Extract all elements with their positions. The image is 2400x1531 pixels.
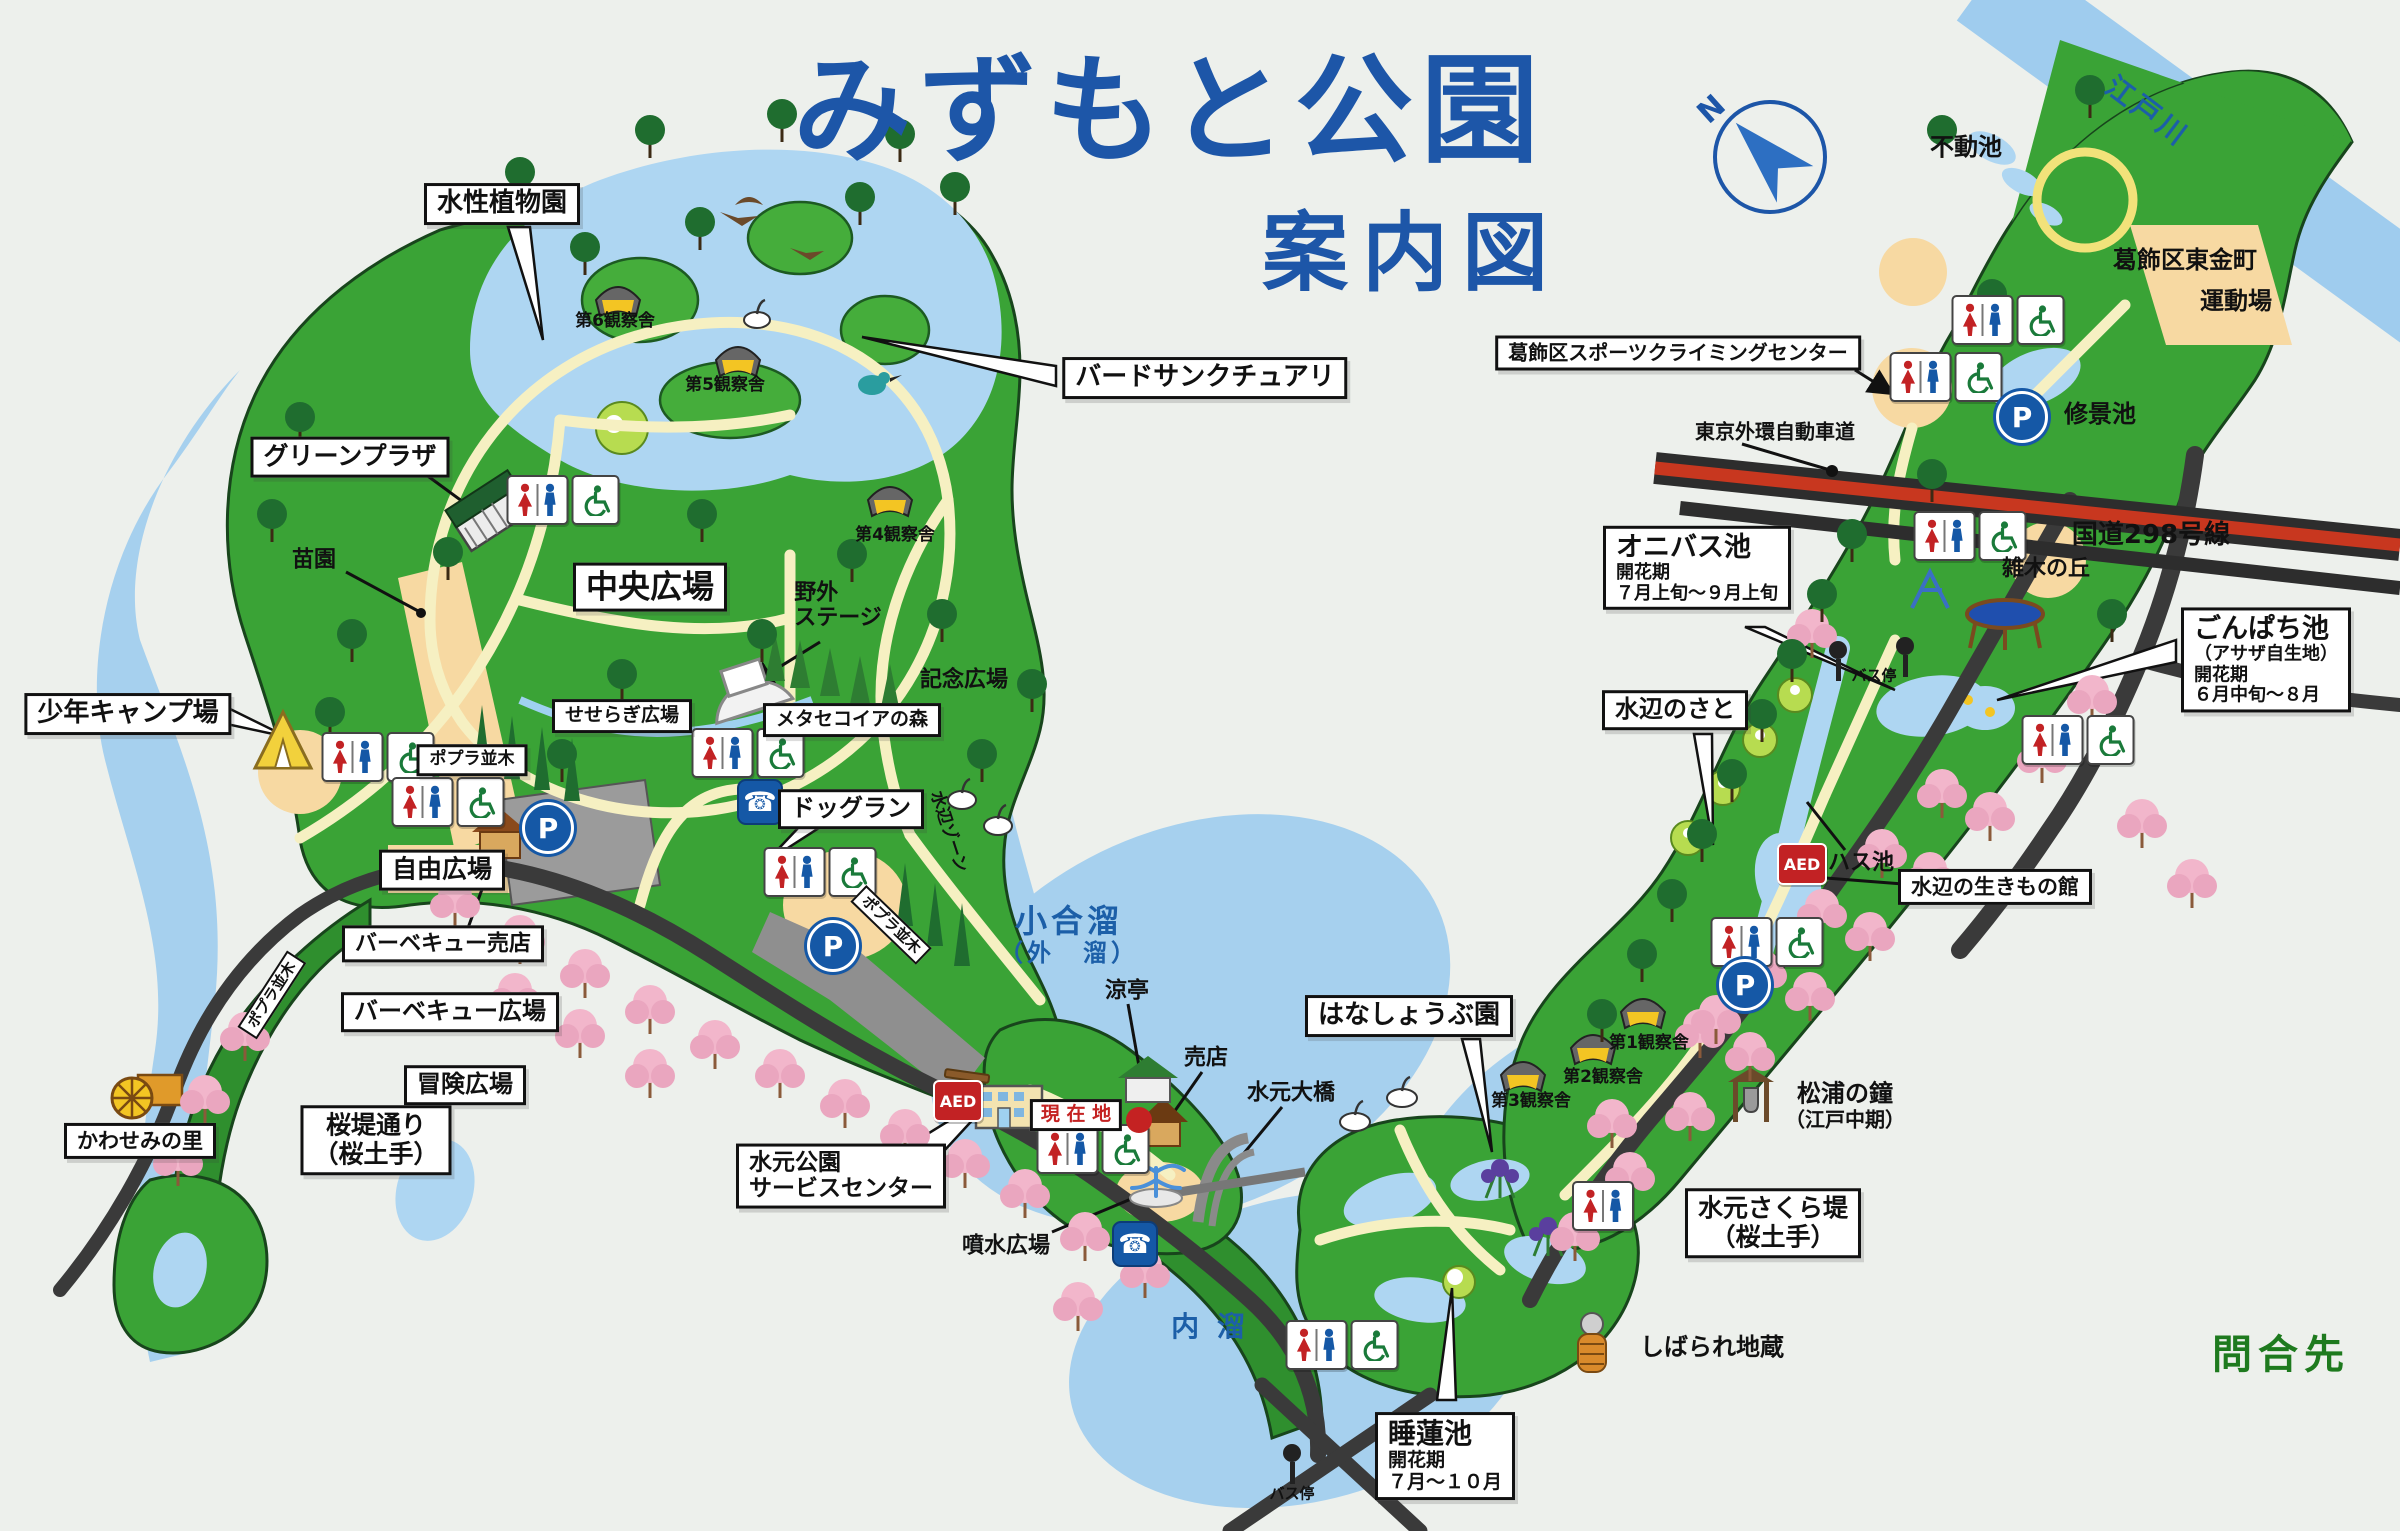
cherry-tree [2117, 799, 2167, 848]
current-location-label: 現 在 地 [1030, 1099, 1122, 1131]
iris-garden-label: はなしょうぶ園 [1305, 995, 1513, 1037]
restroom-icon [1890, 352, 2003, 402]
map-subtitle: 案内図 [1262, 183, 1562, 308]
nursery-garden-label: 苗園 [292, 547, 336, 572]
cherry-tree [755, 1049, 805, 1098]
bird-sanctuary-label: バードサンクチュアリ [1062, 357, 1347, 399]
ryotei-pavilion-label: 涼亭 [1105, 978, 1149, 1003]
aed-icon: AED [933, 1080, 983, 1122]
water-lily-flower [1447, 1269, 1463, 1285]
kawasemi-village-label: かわせみの里 [64, 1123, 216, 1159]
kiosk-label: 売店 [1184, 1045, 1228, 1070]
koaidame-lake-label: 小合溜（外 溜） [999, 903, 1139, 967]
fudo-pond-label: 不動池 [1930, 134, 2002, 162]
mizube-no-sato-label: 水辺のさと [1602, 690, 1748, 730]
aquatic-plant-garden-label: 水性植物園 [424, 183, 580, 225]
poplar-row-sign-1-label: ポプラ並木 [417, 744, 528, 776]
mizumoto-sakura-bank-label: 水元さくら堤（桜土手） [1685, 1188, 1861, 1258]
aed-icon: AED [1777, 843, 1827, 885]
zoki-hill-label: 雑木の丘 [2002, 556, 2090, 581]
cherry-tree [820, 1079, 870, 1128]
cherry-tree [625, 1049, 675, 1098]
fountain-plaza-label: 噴水広場 [962, 1233, 1050, 1258]
metasequoia-forest-label: メタセコイアの森 [763, 703, 941, 737]
higashikanamachi-ground-line2-label: 運動場 [2200, 288, 2272, 316]
bus-stop-icon [1829, 641, 1847, 681]
public-phone-icon: ☎ [737, 779, 783, 825]
restroom-icon [1952, 295, 2065, 345]
cherry-tree [690, 1020, 740, 1069]
gonpachi-pond-label: ごんぱち池（アサザ自生地）開花期６月中旬～８月 [2181, 607, 2351, 712]
tree [635, 115, 665, 158]
free-plaza-label: 自由広場 [379, 850, 505, 891]
cherry-tree [2167, 859, 2217, 908]
compass-ring [1713, 100, 1827, 214]
bbq-shop-label: バーベキュー売店 [342, 925, 544, 962]
higashikanamachi-ground-line1-label: 葛飾区東金町 [2113, 247, 2257, 275]
parking-icon: P [807, 920, 859, 972]
observation-hut-1-label: 第1観察舎 [1609, 1034, 1689, 1054]
outdoor-stage-label: 野外ステージ [794, 581, 882, 632]
observation-hut-4-label: 第4観察舎 [855, 526, 935, 546]
shukei-pond-label: 修景池 [2064, 401, 2136, 429]
inquiry-label: 問合先 [2212, 1332, 2350, 1378]
lotus-pond-label: ハス池 [1828, 850, 1894, 875]
green-plaza-label: グリーンプラザ [250, 437, 449, 478]
jizo-icon [1578, 1313, 1606, 1372]
restroom-icon [764, 847, 877, 897]
restroom-icon [1914, 511, 2027, 561]
onibasu-pond-label: オニバス池開花期７月上旬～９月上旬 [1603, 526, 1791, 610]
waterside-creatures-house-label: 水辺の生きもの館 [1898, 869, 2092, 905]
map-title: みずもと公園 [793, 15, 1547, 186]
current-location-dot [1126, 1107, 1152, 1133]
observation-hut-3-label: 第3観察舎 [1491, 1092, 1571, 1112]
restroom-icon [1286, 1320, 1399, 1370]
observation-hut-6-label: 第6観察舎 [575, 312, 655, 332]
public-phone-icon: ☎ [1112, 1221, 1158, 1267]
central-plaza-label: 中央広場 [573, 563, 727, 612]
youth-camp-ground-label: 少年キャンプ場 [24, 693, 231, 735]
uchidame-lake-label: 内 溜 [1171, 1311, 1249, 1343]
bus-stop-icon [1283, 1444, 1301, 1484]
shibarare-jizo-label: しばられ地蔵 [1640, 1334, 1784, 1362]
restroom-icon [2022, 715, 2135, 765]
park-service-center-label: 水元公園サービスセンター [736, 1144, 946, 1209]
mizumoto-bridge-label: 水元大橋 [1247, 1080, 1335, 1105]
park-guide-map: みずもと公園 案内図 N 水性植物園バードサンクチュアリグリーンプラザ少年キャン… [0, 0, 2400, 1531]
adventure-plaza-label: 冒険広場 [404, 1065, 526, 1105]
tokyo-gaikan-expressway-label: 東京外環自動車道 [1695, 421, 1855, 444]
parking-icon: P [1719, 959, 1771, 1011]
cherry-tree [560, 949, 610, 998]
bus-stop-south-label: バス停 [1269, 1485, 1314, 1502]
water-lily-pond-label: 睡蓮池開花期７月～１０月 [1375, 1412, 1515, 1500]
bbq-plaza-label: バーベキュー広場 [341, 992, 559, 1032]
restroom-icon [1572, 1181, 1634, 1231]
cherry-tree [555, 1009, 605, 1058]
restroom-icon [392, 777, 505, 827]
dog-run-label: ドッグラン [778, 789, 924, 829]
sports-climbing-center-label: 葛飾区スポーツクライミングセンター [1495, 336, 1861, 371]
matsuura-bell-label: 松浦の鐘（江戸中期） [1785, 1081, 1905, 1132]
bus-stop-icon [1896, 637, 1914, 677]
restroom-icon [507, 475, 620, 525]
sakura-bank-street-label: 桜堤通り（桜土手） [300, 1105, 451, 1175]
parking-icon: P [522, 802, 574, 854]
cherry-tree [625, 985, 675, 1034]
route-298-label: 国道298号線 [2072, 521, 2230, 551]
observation-hut-2-label: 第2観察舎 [1563, 1068, 1643, 1088]
memorial-plaza-label: 記念広場 [920, 667, 1008, 692]
compass-rose: N [1713, 100, 1827, 214]
parking-icon: P [1996, 391, 2048, 443]
seseragi-plaza-label: せせらぎ広場 [552, 699, 692, 733]
bus-stop-north-label: バス停 [1851, 667, 1896, 684]
observation-hut-5-label: 第5観察舎 [685, 376, 765, 396]
